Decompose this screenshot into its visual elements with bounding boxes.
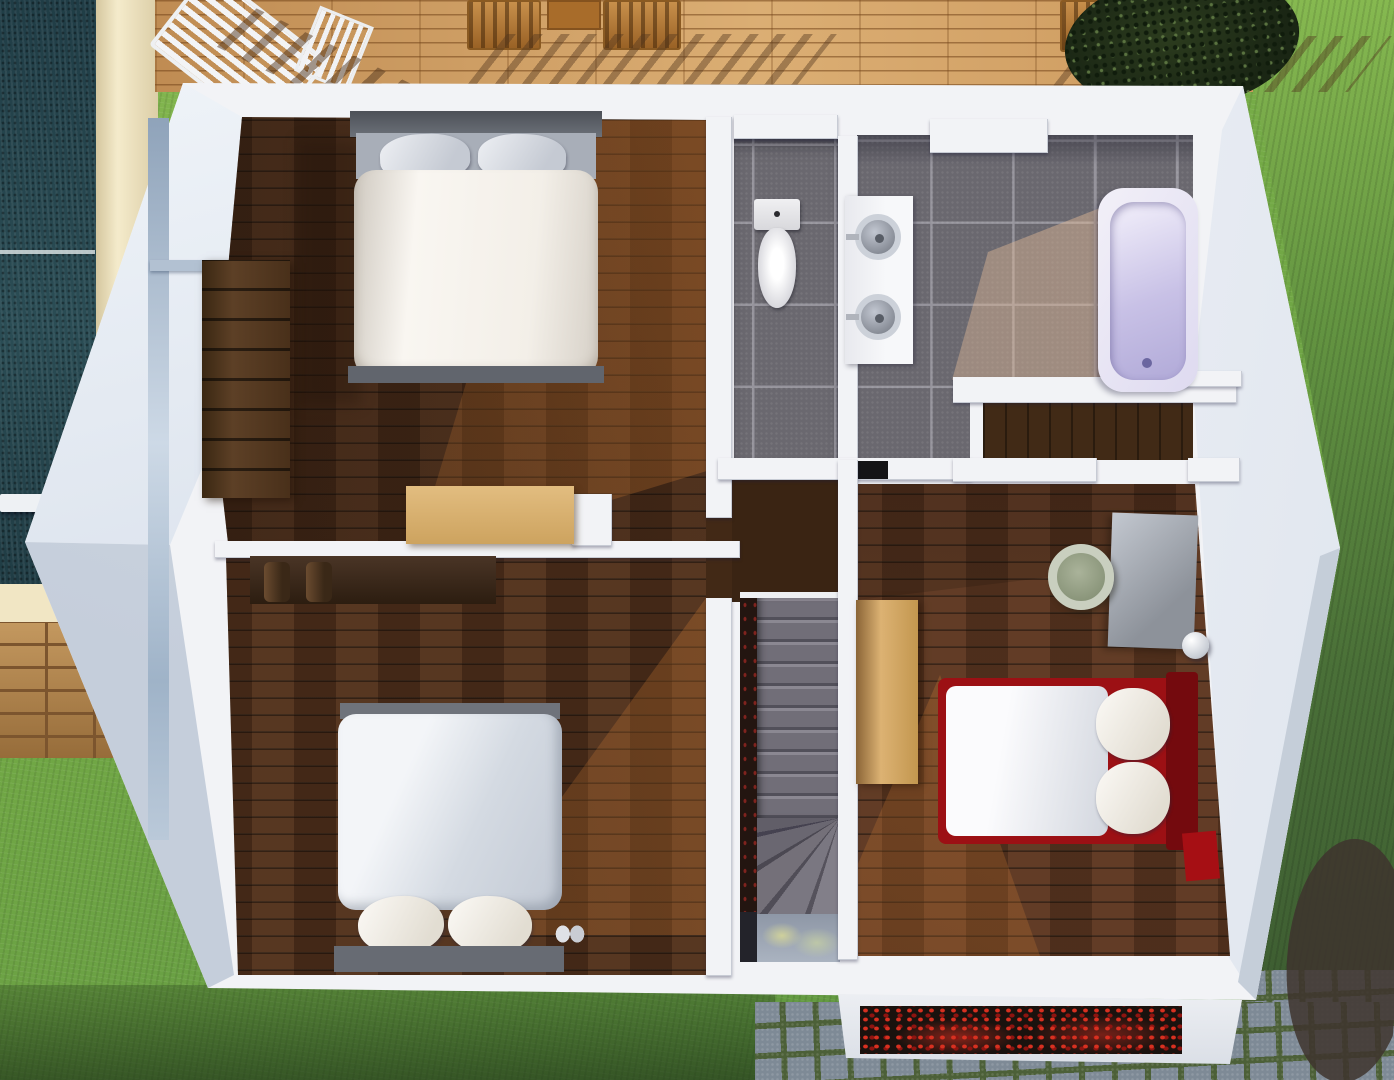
wall-stair-bedroom3 [838,460,858,960]
lawn-house-shadow [0,985,775,1080]
sink [855,294,901,340]
bathtub-basin [1110,202,1186,380]
bed3-mattress [946,686,1108,836]
toilet-tank [754,199,800,230]
stair-lower-landing [757,914,840,962]
bed1-duvet [354,170,598,378]
bedroom2-desk [250,556,496,604]
beige-chest [406,486,574,544]
floor-object [552,920,588,948]
tan-dresser [856,600,918,784]
staircase [740,598,840,962]
canopy-opening-red-plants [860,1006,1182,1054]
faucet [846,314,859,320]
wall-pillar [572,494,612,546]
toilet-bowl [758,228,796,308]
wall-vestibule-left [953,458,1097,482]
stair-window [148,118,169,840]
bed2-headboard [334,946,564,972]
pool-edge-line [0,250,95,254]
bed3-headboard [1166,672,1198,850]
chair-shadow [463,34,837,90]
faucet [846,234,859,240]
desk-leg [306,562,332,602]
bathroom-ledge [930,119,1048,153]
bedroom3-desk [1108,513,1199,650]
stair-treads [757,598,840,818]
bathtub-drain [1142,358,1152,368]
wall-bedroom2-hall [706,598,732,976]
sink [855,214,901,260]
vestibule-floor [983,402,1193,460]
bed3-pillow [1096,762,1170,834]
wall-vestibule-right [1188,458,1240,482]
bed3-pillow [1096,688,1170,760]
bed2-duvet [338,714,562,910]
stair-winder-treads [757,818,840,914]
bedroom2-door-opening [706,518,732,598]
stair-side-stringer [740,598,757,912]
deck-table [547,0,601,30]
desk-leg [264,562,290,602]
round-chair [1048,544,1114,610]
wall-wc-top [734,115,838,139]
wardrobe [202,260,290,498]
sphere-lamp [1182,632,1209,659]
floor-plan-render [0,0,1394,1080]
bed1-footboard [348,366,604,383]
red-blanket-drape [1182,831,1220,882]
